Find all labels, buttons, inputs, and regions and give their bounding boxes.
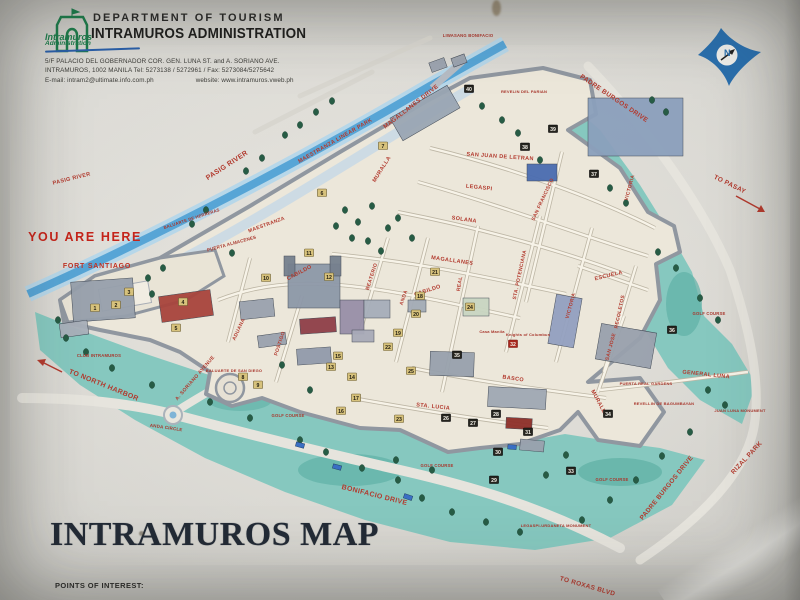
poi-marker-number: 11 [306, 251, 312, 257]
map-label: TO ROXAS BLVD [559, 575, 616, 598]
tree-icon [297, 122, 302, 129]
poi-marker-number: 23 [396, 417, 402, 423]
building [296, 347, 331, 365]
poi-marker-number: 37 [591, 172, 597, 178]
tree-icon [279, 362, 284, 369]
tree-icon [349, 235, 354, 242]
map-label: JUAN LUNA MONUMENT [714, 408, 766, 413]
map-label: BALUARTE DE SAN DIEGO [206, 368, 262, 373]
website-text: website: www.intramuros.vweb.ph [196, 77, 294, 84]
building [71, 278, 136, 322]
tree-icon [359, 465, 364, 472]
tree-icon [449, 509, 454, 516]
poi-marker-number: 19 [395, 331, 401, 337]
map-label: YOU ARE HERE [28, 230, 142, 244]
poi-marker-number: 29 [491, 478, 497, 484]
tree-icon [543, 472, 548, 479]
tree-icon [109, 365, 114, 372]
tree-icon [247, 415, 252, 422]
map-label: GOLF COURSE [596, 477, 629, 482]
poi-marker-number: 3 [128, 290, 131, 296]
address-line3: E-mail: intram2@ultimate.info.com.ph web… [45, 77, 294, 84]
poi-marker-number: 4 [182, 300, 185, 306]
tree-icon [563, 452, 568, 459]
email-text: E-mail: intram2@ultimate.info.com.ph [45, 77, 154, 84]
tree-icon [607, 185, 612, 192]
tree-icon [479, 103, 484, 110]
tree-icon [342, 207, 347, 214]
poi-marker-number: 26 [443, 416, 449, 422]
photo-stain [492, 0, 501, 16]
tree-icon [55, 317, 60, 324]
poi-marker-number: 30 [495, 450, 501, 456]
north-compass-icon: N [693, 25, 765, 87]
tree-icon [649, 97, 654, 104]
header: DEPARTMENT OF TOURISM INTRAMUROS ADMINIS… [45, 4, 475, 94]
logo-underline [45, 47, 140, 52]
map-label: CLUB INTRAMUROS [77, 353, 121, 358]
poi-marker-number: 31 [525, 430, 531, 436]
map-label: PUERTA REAL GARDENS [620, 381, 673, 386]
map-label: Knights of Columbus [506, 332, 551, 337]
tree-icon [483, 519, 488, 526]
tree-icon [687, 429, 692, 436]
logo-script-line2: Administration [45, 41, 140, 48]
poi-marker-number: 35 [454, 353, 460, 359]
poi-marker-number: 28 [493, 412, 499, 418]
logo-script: Intramuros Administration [45, 33, 140, 51]
tree-icon [378, 248, 383, 255]
poi-marker-number: 10 [263, 276, 269, 282]
map-label: GOLF COURSE [272, 413, 305, 418]
tree-icon [499, 117, 504, 124]
tree-icon [419, 495, 424, 502]
map-label: Casa Manila [479, 329, 505, 334]
poi-marker-number: 5 [175, 326, 178, 332]
tree-icon [673, 265, 678, 272]
tree-icon [365, 238, 370, 245]
poi-marker-number: 21 [432, 270, 438, 276]
building [527, 164, 557, 181]
tree-icon [659, 453, 664, 460]
address-line2: INTRAMUROS, 1002 MANILA Tel: 5273138 / 5… [45, 67, 274, 74]
tree-icon [145, 275, 150, 282]
tree-icon [207, 399, 212, 406]
car-icon [508, 444, 517, 449]
anda-circle-center [170, 412, 177, 419]
map-label: GOLF COURSE [421, 463, 454, 468]
poi-marker-number: 16 [338, 409, 344, 415]
building [364, 300, 390, 318]
photo-edge-shadow [784, 0, 800, 600]
poi-marker-number: 24 [467, 305, 473, 311]
poi-marker-number: 33 [568, 469, 574, 475]
tree-icon [149, 382, 154, 389]
tree-icon [537, 157, 542, 164]
tree-icon [395, 215, 400, 222]
poi-marker-number: 20 [413, 312, 419, 318]
building [340, 300, 364, 334]
poi-marker-number: 39 [550, 127, 556, 133]
tree-icon [243, 168, 248, 175]
tree-icon [607, 497, 612, 504]
map-label: REVELIN DEL PARIAN [501, 89, 547, 94]
poi-marker-number: 8 [242, 375, 245, 381]
tree-icon [307, 387, 312, 394]
tree-icon [715, 317, 720, 324]
tree-icon [355, 219, 360, 226]
tree-icon [63, 335, 68, 342]
poi-marker-number: 34 [605, 412, 611, 418]
tree-icon [655, 249, 660, 256]
sign-photo: PASIG RIVERPASIG RIVERMAESTRANZA LINEAR … [0, 0, 800, 600]
points-of-interest-label: POINTS OF INTEREST: [55, 581, 144, 590]
map-title: INTRAMUROS MAP [50, 516, 379, 554]
poi-marker-number: 14 [349, 375, 355, 381]
tree-icon [705, 387, 710, 394]
tree-icon [385, 225, 390, 232]
building [520, 439, 545, 452]
tree-icon [160, 265, 165, 272]
building [488, 386, 547, 409]
tree-icon [663, 109, 668, 116]
map-label: GOLF COURSE [693, 311, 726, 316]
poi-marker-number: 9 [257, 383, 260, 389]
tree-icon [697, 295, 702, 302]
poi-marker-number: 25 [408, 369, 414, 375]
address-line1: 5/F PALACIO DEL GOBERNADOR COR. GEN. LUN… [45, 58, 280, 65]
map-label: REVELLIN DE BAGUMBAYAN [634, 401, 695, 406]
tree-icon [409, 235, 414, 242]
compass-north-letter: N [724, 48, 731, 58]
dept-of-tourism-title: DEPARTMENT OF TOURISM [93, 12, 285, 24]
poi-marker-number: 36 [669, 328, 675, 334]
tree-icon [229, 250, 234, 257]
tree-icon [395, 477, 400, 484]
tree-icon [282, 132, 287, 139]
poi-marker-number: 7 [382, 144, 385, 150]
poi-marker-number: 2 [115, 303, 118, 309]
poi-marker-number: 1 [94, 306, 97, 312]
building [588, 98, 683, 156]
photo-stain [139, 531, 144, 536]
building [239, 298, 275, 319]
tree-icon [515, 130, 520, 137]
poi-marker-number: 15 [335, 354, 341, 360]
poi-marker-number: 18 [417, 294, 423, 300]
tree-icon [393, 457, 398, 464]
poi-marker-number: 22 [385, 345, 391, 351]
map-label: FORT SANTIAGO [63, 263, 131, 270]
building [352, 330, 374, 342]
tree-icon [323, 449, 328, 456]
poi-marker-number: 32 [510, 342, 516, 348]
tree-icon [517, 529, 522, 536]
building [300, 317, 337, 334]
tree-icon [329, 98, 334, 105]
poi-marker-number: 27 [470, 421, 476, 427]
tree-icon [633, 477, 638, 484]
tree-icon [313, 109, 318, 116]
tree-icon [149, 291, 154, 298]
map-label: LEGASPI-URDANETA MONUMENT [521, 523, 592, 528]
poi-marker-number: 12 [326, 275, 332, 281]
tree-icon [333, 223, 338, 230]
tree-icon [259, 155, 264, 162]
poi-marker-number: 38 [522, 145, 528, 151]
building [430, 351, 475, 377]
poi-marker-number: 6 [321, 191, 324, 197]
poi-marker-number: 13 [328, 365, 334, 371]
poi-marker-number: 17 [353, 396, 359, 402]
tree-icon [369, 203, 374, 210]
